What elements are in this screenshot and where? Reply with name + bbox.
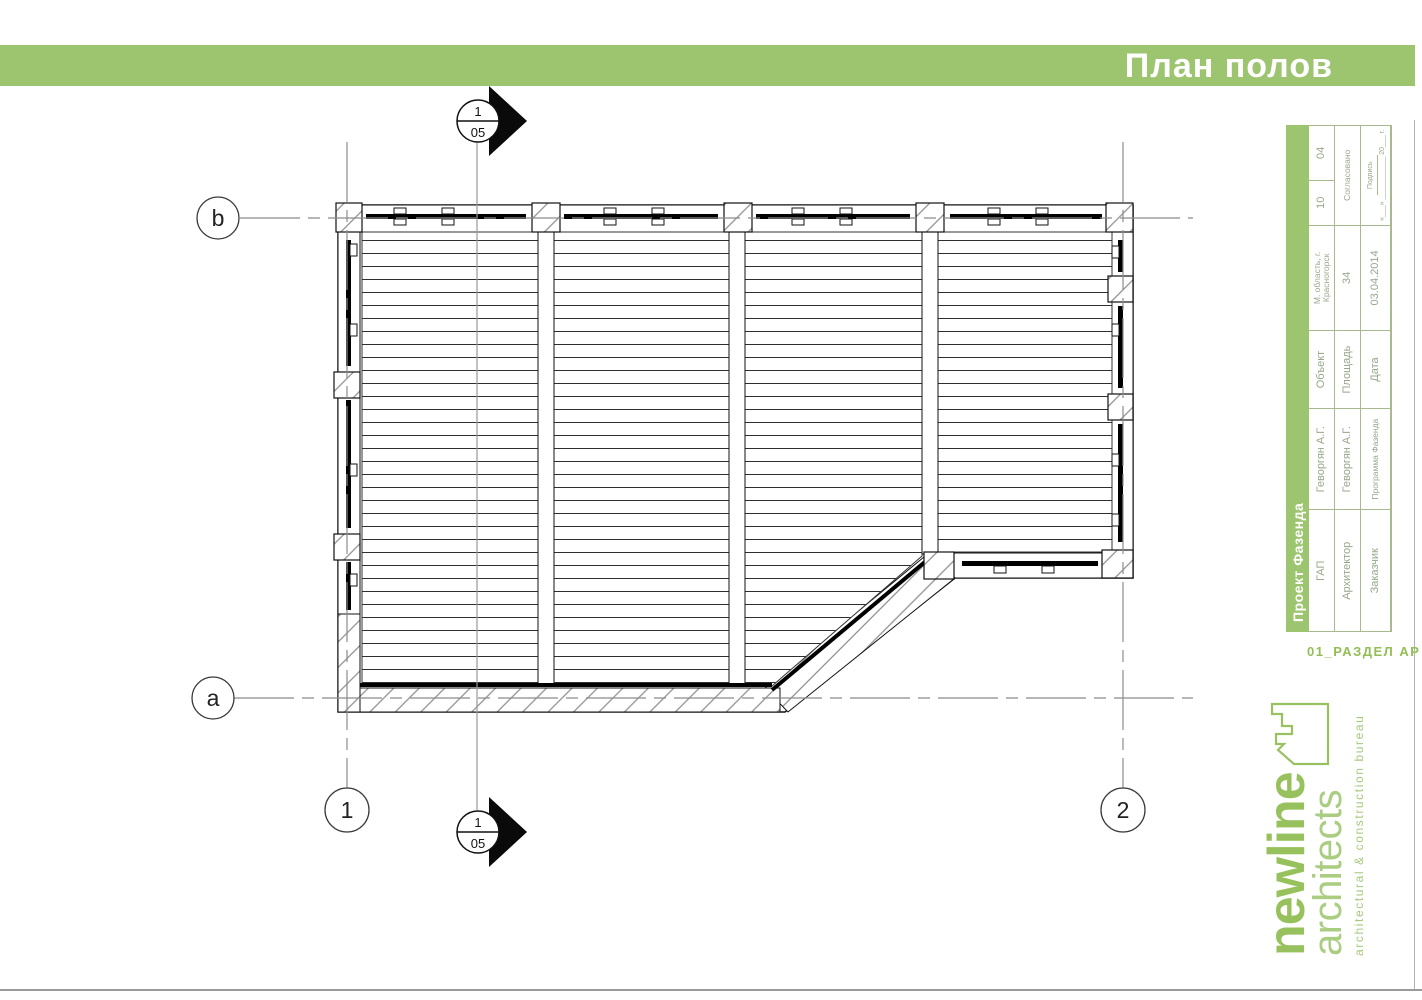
bottom-left-corner xyxy=(338,614,360,712)
logo-name: newline xyxy=(1266,772,1309,956)
svg-text:05: 05 xyxy=(471,836,485,851)
signature-cell: Подпись «___» ___________ 20___ г. xyxy=(1361,126,1390,225)
agreed-label: Согласовано xyxy=(1335,126,1360,225)
role-label: ГАП xyxy=(1309,509,1334,631)
floor-bay-2 xyxy=(554,232,729,686)
role-value: Программа Фазенда xyxy=(1361,408,1390,510)
signature-blank: «___» ___________ 20___ г. xyxy=(1378,130,1387,221)
info-value: 03.04.2014 xyxy=(1361,225,1390,331)
floor-bay-1 xyxy=(362,232,538,686)
bottom-wall xyxy=(338,688,780,712)
svg-text:1: 1 xyxy=(474,815,481,830)
title-block: Проект Фазенда ГАП Геворгян А.Г. Объект … xyxy=(1286,125,1415,632)
title-block-table: ГАП Геворгян А.Г. Объект М. область, г. … xyxy=(1309,125,1392,632)
table-row: ГАП Геворгян А.Г. Объект М. область, г. … xyxy=(1309,126,1335,631)
beam-1 xyxy=(538,232,554,686)
role-value: Геворгян А.Г. xyxy=(1335,408,1360,510)
grid-bubble-2: 2 xyxy=(1101,788,1145,832)
svg-text:2: 2 xyxy=(1117,797,1130,823)
info-value: М. область, г. Красногорск xyxy=(1309,225,1334,331)
info-label: Объект xyxy=(1309,330,1334,408)
logo: newline architects architectural & const… xyxy=(1266,654,1392,956)
role-value: Геворгян А.Г. xyxy=(1309,408,1334,510)
logo-tagline: architectural & construction bureau xyxy=(1352,654,1366,956)
role-label: Архитектор xyxy=(1335,509,1360,631)
svg-text:1: 1 xyxy=(474,104,481,119)
info-value: 34 xyxy=(1335,225,1360,331)
section-marker-top: 1 05 xyxy=(457,86,527,156)
svg-text:05: 05 xyxy=(471,125,485,140)
title-block-project: Проект Фазенда xyxy=(1286,125,1309,632)
grid-bubble-b: b xyxy=(197,197,239,239)
floor-bay-4 xyxy=(938,232,1112,552)
table-row: Архитектор Геворгян А.Г. Площадь 34 Согл… xyxy=(1335,126,1361,631)
grid-bubble-a: a xyxy=(192,677,234,719)
header-bar: План полов xyxy=(0,45,1415,86)
page-title: План полов xyxy=(1125,45,1333,86)
drawing-sheet: b a 1 2 1 05 1 05 Пл xyxy=(0,0,1422,1000)
role-label: Заказчик xyxy=(1361,509,1390,631)
info-label: Дата xyxy=(1361,330,1390,408)
table-row: Заказчик Программа Фазенда Дата 03.04.20… xyxy=(1361,126,1391,631)
sheet-count: 10 xyxy=(1309,180,1334,225)
sheet-border-bottom xyxy=(0,989,1422,991)
sheet-count: 04 xyxy=(1309,126,1334,180)
svg-text:b: b xyxy=(212,205,225,231)
svg-text:a: a xyxy=(207,685,220,711)
beam-3 xyxy=(922,232,938,554)
section-marker-bottom: 1 05 xyxy=(457,797,527,867)
logo-building-icon xyxy=(1268,698,1332,768)
floor-plan-drawing: b a 1 2 1 05 1 05 xyxy=(0,0,1422,1000)
signature-label: Подпись xyxy=(1366,155,1377,195)
info-label: Площадь xyxy=(1335,330,1360,408)
logo-subname: architects xyxy=(1309,772,1347,956)
grid-bubble-1: 1 xyxy=(325,788,369,832)
svg-text:1: 1 xyxy=(341,797,354,823)
beam-2 xyxy=(729,232,745,686)
